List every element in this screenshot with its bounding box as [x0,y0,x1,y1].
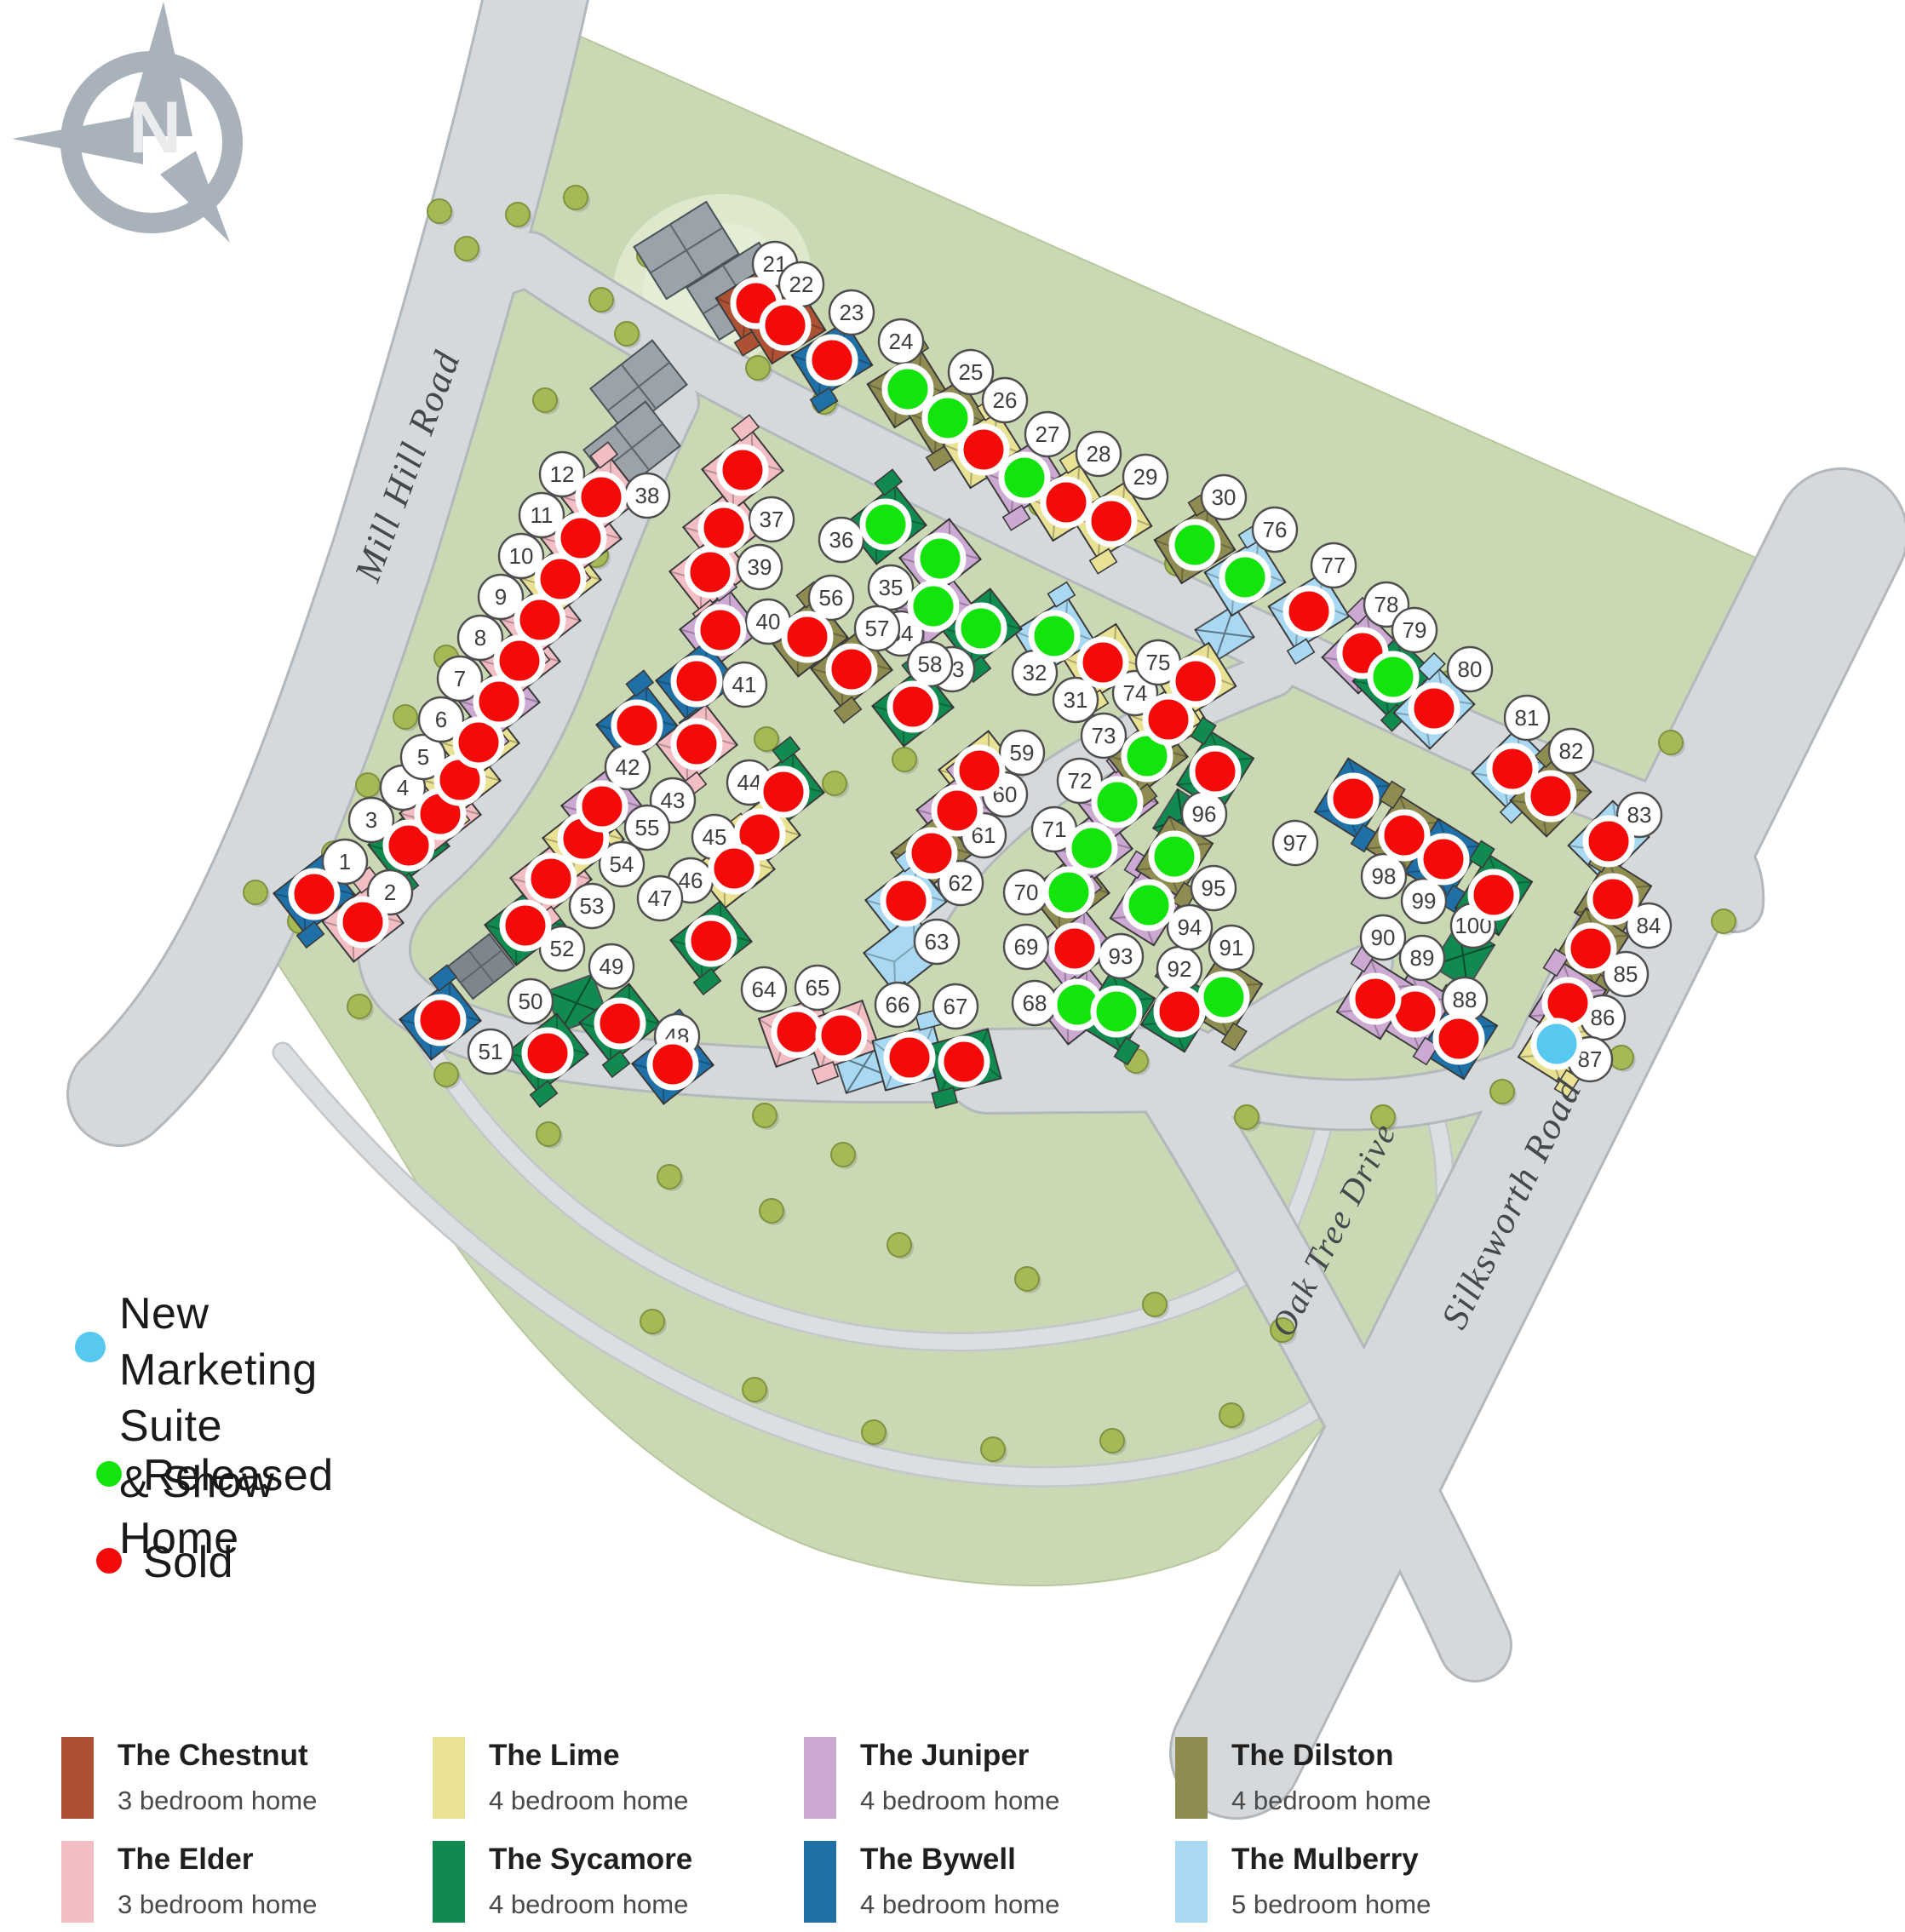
plot-status-dot-99[interactable] [1420,836,1466,882]
plot-status-dot-12[interactable] [578,474,624,520]
plot-status-dot-51[interactable] [525,1030,571,1076]
svg-text:37: 37 [760,507,784,532]
plot-status-dot-82[interactable] [1528,773,1574,819]
plot-status-dot-23[interactable] [809,337,855,383]
plot-number-53: 53 [570,884,614,928]
plot-status-dot-39[interactable] [687,549,733,595]
svg-text:77: 77 [1322,553,1346,578]
type-desc: 5 bedroom home [1231,1877,1431,1921]
tree-icon [831,1143,855,1167]
type-desc: 4 bedroom home [489,1877,692,1921]
plot-status-dot-94[interactable] [1126,882,1172,928]
tree-icon [746,356,770,380]
status-item-marketing: New Marketing Suite& Show Home [68,1286,318,1567]
site-plan-map: 1234567891011122122232425262728293031323… [0,0,1905,1932]
svg-text:42: 42 [616,754,640,780]
plot-status-dot-41[interactable] [674,658,720,704]
svg-text:53: 53 [580,893,605,919]
svg-text:85: 85 [1614,961,1638,987]
plot-status-dot-46[interactable] [711,846,757,891]
marketing-suite-dot [75,1332,106,1362]
svg-text:84: 84 [1637,913,1661,938]
plot-status-dot-62[interactable] [883,878,929,924]
svg-text:63: 63 [925,929,950,955]
svg-text:N: N [129,87,181,169]
tree-icon [536,1122,560,1146]
type-swatch [804,1841,836,1923]
svg-text:52: 52 [550,936,575,961]
compass-north-icon: N [12,2,232,243]
tree-icon [356,773,380,797]
tree-icon [760,1199,783,1223]
plot-status-dot-55[interactable] [579,783,625,829]
plot-status-dot-69[interactable] [1052,926,1098,972]
plot-status-dot-40[interactable] [697,607,743,653]
tree-icon [1015,1267,1039,1291]
plot-number-51: 51 [468,1029,513,1074]
svg-text:9: 9 [495,584,507,610]
svg-text:72: 72 [1068,768,1093,794]
tree-icon [244,880,267,904]
plot-status-dot-30[interactable] [1172,522,1218,568]
svg-text:6: 6 [435,707,447,732]
svg-text:22: 22 [789,272,814,297]
plot-status-dot-88[interactable] [1436,1016,1482,1062]
plot-status-dot-48[interactable] [650,1041,696,1087]
tree-icon [615,322,639,346]
svg-text:56: 56 [819,585,844,611]
svg-text:80: 80 [1458,656,1483,682]
svg-text:64: 64 [752,977,777,1002]
plot-status-dot-79[interactable] [1370,654,1416,700]
type-legend-item-the-mulberry: The Mulberry5 bedroom home [1175,1841,1431,1923]
plot-number-35: 35 [869,565,913,610]
type-name: The Lime [489,1737,688,1773]
svg-text:2: 2 [384,880,396,905]
type-desc: 3 bedroom home [118,1877,317,1921]
type-name: The Bywell [860,1841,1059,1877]
svg-text:98: 98 [1372,863,1397,889]
plot-number-80: 80 [1448,647,1492,691]
svg-text:88: 88 [1453,987,1478,1012]
plot-status-dot-37[interactable] [701,505,747,551]
svg-text:30: 30 [1212,484,1237,510]
svg-text:35: 35 [879,575,904,600]
type-swatch [433,1737,465,1819]
plot-number-92: 92 [1157,947,1202,991]
tree-icon [347,995,371,1018]
svg-text:66: 66 [886,992,910,1018]
plot-number-30: 30 [1202,475,1246,519]
plot-number-26: 26 [983,378,1027,422]
tree-icon [1609,1046,1633,1069]
plot-status-dot-80[interactable] [1411,685,1457,731]
tree-icon [1659,731,1683,754]
tree-icon [434,1063,458,1086]
tree-icon [981,1437,1005,1461]
svg-text:97: 97 [1283,830,1308,856]
entrance [473,261,535,283]
plot-number-27: 27 [1025,412,1070,456]
tree-icon [564,186,588,209]
type-swatch [1175,1841,1208,1923]
tree-icon [743,1378,766,1402]
plot-number-97: 97 [1273,821,1317,865]
plot-status-dot-83[interactable] [1586,818,1632,864]
plot-status-dot-93[interactable] [1093,989,1139,1035]
status-item-released: Released [68,1448,334,1504]
type-name: The Chestnut [118,1737,317,1773]
plot-number-89: 89 [1400,936,1444,980]
plot-number-67: 67 [933,984,978,1029]
plot-status-dot-95[interactable] [1151,834,1197,880]
type-desc: 4 bedroom home [489,1773,688,1817]
svg-text:36: 36 [829,527,854,553]
plot-status-dot-29[interactable] [1088,498,1134,544]
plot-number-99: 99 [1402,879,1446,923]
plot-number-38: 38 [625,473,669,518]
plot-status-dot-56[interactable] [784,614,830,660]
plot-number-49: 49 [589,944,634,989]
tree-icon [589,288,613,312]
svg-text:27: 27 [1036,421,1060,447]
plot-number-70: 70 [1004,870,1048,914]
plot-status-dot-70[interactable] [1046,869,1092,915]
svg-text:38: 38 [635,483,660,508]
tree-icon [862,1420,886,1444]
tree-icon [533,388,557,412]
svg-text:39: 39 [748,554,772,580]
plot-number-29: 29 [1123,455,1168,499]
plot-number-50: 50 [508,979,553,1023]
tree-icon [892,748,916,771]
svg-text:11: 11 [531,502,554,528]
svg-text:78: 78 [1374,592,1399,617]
plot-status-dot-50[interactable] [417,997,463,1043]
svg-text:65: 65 [806,975,830,1000]
released-dot [96,1461,122,1487]
plot-status-dot-90[interactable] [1352,976,1398,1022]
plot-status-dot-77[interactable] [1286,588,1332,634]
tree-icon [1219,1403,1243,1427]
plot-status-dot-97[interactable] [1330,776,1376,822]
plot-status-dot-84[interactable] [1590,876,1636,922]
tree-icon [1143,1293,1167,1316]
svg-text:73: 73 [1092,723,1116,748]
svg-text:4: 4 [397,775,409,800]
plot-status-dot-57[interactable] [829,646,875,692]
plot-number-94: 94 [1168,905,1212,949]
plot-number-57: 57 [855,606,899,651]
plot-number-73: 73 [1082,714,1126,758]
svg-text:41: 41 [732,672,757,697]
svg-text:67: 67 [944,994,968,1019]
tree-icon [455,237,479,261]
type-desc: 4 bedroom home [860,1877,1059,1921]
plot-number-23: 23 [829,290,874,335]
plot-status-dot-66[interactable] [887,1035,932,1081]
svg-text:28: 28 [1087,441,1111,467]
svg-text:31: 31 [1064,687,1088,713]
svg-text:96: 96 [1192,801,1217,827]
plot-number-76: 76 [1253,507,1297,552]
svg-text:83: 83 [1627,802,1652,828]
tree-icon [823,771,846,795]
type-name: The Mulberry [1231,1841,1431,1877]
plot-number-47: 47 [638,876,682,920]
plot-status-dot-32[interactable] [1031,613,1077,659]
svg-text:29: 29 [1133,464,1158,490]
type-legend-item-the-elder: The Elder3 bedroom home [61,1841,317,1923]
svg-text:3: 3 [365,807,377,833]
plot-number-36: 36 [819,518,864,562]
plot-number-81: 81 [1505,696,1549,740]
svg-text:71: 71 [1042,817,1067,842]
type-legend-item-the-bywell: The Bywell4 bedroom home [804,1841,1059,1923]
plot-status-dot-49[interactable] [597,1000,643,1046]
plot-status-dot-31[interactable] [1080,639,1126,685]
type-swatch [433,1841,465,1923]
plot-status-dot-67[interactable] [941,1039,987,1085]
svg-text:68: 68 [1023,990,1047,1016]
plot-status-dot-27[interactable] [1001,455,1047,501]
svg-text:81: 81 [1515,705,1540,731]
plot-status-dot-65[interactable] [818,1012,864,1058]
svg-text:49: 49 [600,954,624,979]
svg-text:91: 91 [1219,935,1244,960]
tree-icon [755,727,778,751]
plot-status-dot-60[interactable] [934,788,980,834]
plot-status-dot-72[interactable] [1094,779,1140,825]
svg-text:51: 51 [479,1039,503,1064]
type-name: The Dilston [1231,1737,1431,1773]
plot-status-dot-33[interactable] [958,605,1004,651]
plot-number-95: 95 [1191,866,1236,910]
type-desc: 4 bedroom home [1231,1773,1431,1817]
plot-status-dot-64[interactable] [774,1009,820,1055]
svg-text:75: 75 [1146,650,1171,675]
tree-icon [640,1310,664,1333]
sold-dot [96,1548,122,1574]
type-legend-item-the-dilston: The Dilston4 bedroom home [1175,1737,1431,1819]
plot-status-dot-38[interactable] [720,447,766,493]
svg-text:46: 46 [679,868,703,893]
svg-text:70: 70 [1014,880,1039,905]
plot-status-dot-34[interactable] [910,583,956,629]
status-label-released: Released [143,1448,334,1504]
svg-text:99: 99 [1412,888,1437,914]
type-name: The Elder [118,1841,317,1877]
plot-status-dot-1[interactable] [291,871,337,917]
site-plan-stage: 1234567891011122122232425262728293031323… [0,0,1905,1932]
svg-text:90: 90 [1371,925,1396,950]
plot-status-dot-43[interactable] [674,721,720,767]
plot-status-dot-22[interactable] [762,302,808,348]
plot-status-dot-87[interactable] [1534,1021,1580,1067]
plot-status-dot-75[interactable] [1173,658,1219,704]
plot-number-69: 69 [1004,925,1048,969]
tree-icon [1490,1080,1514,1104]
tree-icon [753,1104,777,1127]
plot-status-dot-76[interactable] [1222,554,1268,600]
svg-text:86: 86 [1591,1005,1615,1030]
plot-number-91: 91 [1209,926,1254,970]
svg-text:50: 50 [519,989,543,1014]
plot-number-37: 37 [749,497,794,542]
svg-text:59: 59 [1010,740,1035,765]
plot-status-dot-71[interactable] [1069,825,1115,871]
svg-text:43: 43 [661,788,686,813]
svg-text:62: 62 [949,870,973,896]
svg-text:69: 69 [1014,934,1039,960]
svg-text:8: 8 [474,625,486,651]
plot-number-77: 77 [1311,543,1356,588]
plot-status-dot-36[interactable] [863,502,909,547]
plot-status-dot-26[interactable] [961,427,1007,473]
svg-text:12: 12 [550,462,575,487]
plot-number-96: 96 [1182,792,1226,836]
svg-text:95: 95 [1202,875,1226,901]
plot-status-dot-24[interactable] [885,366,931,412]
type-name: The Juniper [860,1737,1059,1773]
plot-number-24: 24 [879,319,923,364]
plot-status-dot-28[interactable] [1043,479,1089,525]
plot-number-63: 63 [915,920,959,964]
svg-text:54: 54 [610,851,634,877]
tree-icon [657,1165,681,1189]
svg-text:23: 23 [840,300,864,325]
plot-number-79: 79 [1392,608,1437,652]
plot-status-dot-44[interactable] [760,769,806,815]
svg-text:92: 92 [1168,956,1192,982]
svg-text:47: 47 [648,886,673,911]
svg-text:40: 40 [756,609,781,634]
plot-number-39: 39 [737,545,782,589]
plot-status-dot-53[interactable] [528,856,574,902]
svg-text:74: 74 [1123,680,1148,706]
svg-text:93: 93 [1109,943,1133,969]
tree-icon [1712,909,1736,933]
type-legend-item-the-lime: The Lime4 bedroom home [433,1737,688,1819]
svg-text:79: 79 [1403,617,1427,643]
status-item-sold: Sold [68,1534,233,1591]
plot-status-dot-85[interactable] [1568,926,1614,972]
plot-number-66: 66 [875,983,920,1027]
plot-status-dot-35[interactable] [917,536,963,582]
plot-number-58: 58 [908,642,952,686]
svg-text:32: 32 [1023,660,1047,685]
svg-text:76: 76 [1263,517,1288,542]
plot-status-dot-52[interactable] [502,903,548,949]
type-desc: 3 bedroom home [118,1773,317,1817]
plot-number-55: 55 [625,805,669,850]
type-legend-item-the-chestnut: The Chestnut3 bedroom home [61,1737,317,1819]
svg-text:26: 26 [993,387,1018,413]
type-swatch [1175,1737,1208,1819]
svg-text:1: 1 [339,849,351,874]
type-legend-item-the-sycamore: The Sycamore4 bedroom home [433,1841,692,1923]
plot-number-90: 90 [1361,915,1405,960]
svg-text:55: 55 [635,815,660,840]
plot-status-dot-91[interactable] [1201,974,1247,1020]
plot-status-dot-58[interactable] [890,684,936,730]
type-name: The Sycamore [489,1841,692,1877]
svg-text:94: 94 [1178,914,1202,940]
tree-icon [393,705,417,729]
svg-text:7: 7 [454,666,466,691]
type-swatch [61,1841,94,1923]
tree-icon [506,203,530,226]
plot-number-28: 28 [1076,432,1121,476]
type-desc: 4 bedroom home [860,1773,1059,1817]
svg-text:10: 10 [509,543,534,569]
svg-text:24: 24 [889,329,914,354]
plot-status-dot-96[interactable] [1192,748,1238,794]
tree-icon [427,199,451,223]
plot-status-dot-2[interactable] [340,899,386,945]
plot-number-93: 93 [1099,934,1143,978]
tree-icon [1100,1429,1124,1453]
status-label-marketing: New Marketing Suite& Show Home [119,1286,318,1567]
plot-number-59: 59 [1000,731,1044,775]
plot-status-dot-100[interactable] [1471,872,1517,918]
plot-number-41: 41 [722,662,766,707]
plot-status-dot-61[interactable] [909,830,955,876]
svg-text:5: 5 [417,744,429,770]
type-legend-item-the-juniper: The Juniper4 bedroom home [804,1737,1059,1819]
plot-status-dot-47[interactable] [688,918,734,964]
svg-text:82: 82 [1559,738,1584,764]
plot-number-64: 64 [742,967,786,1012]
svg-text:89: 89 [1410,945,1435,971]
plot-status-dot-92[interactable] [1156,989,1202,1035]
plot-number-82: 82 [1549,729,1593,773]
plot-status-dot-42[interactable] [614,702,660,748]
tree-icon [1235,1105,1259,1129]
svg-text:25: 25 [959,359,984,385]
plot-number-65: 65 [795,966,840,1010]
plot-number-68: 68 [1013,981,1057,1025]
svg-text:58: 58 [918,651,943,677]
type-swatch [61,1737,94,1819]
type-swatch [804,1737,836,1819]
status-label-sold: Sold [143,1534,233,1591]
tree-icon [887,1233,911,1257]
svg-text:57: 57 [865,616,890,641]
